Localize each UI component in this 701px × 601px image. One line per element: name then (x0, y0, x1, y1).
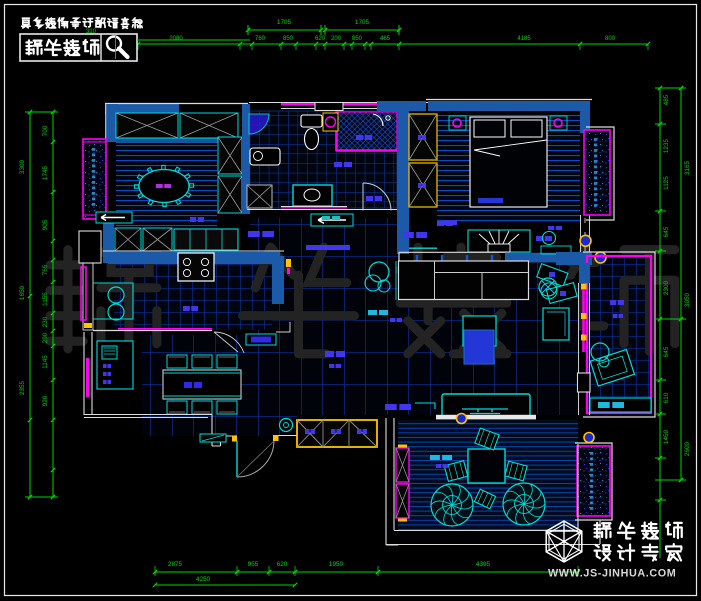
svg-text:2600: 2600 (684, 441, 691, 456)
svg-text:765: 765 (42, 264, 49, 275)
svg-text:2875: 2875 (168, 561, 183, 568)
svg-text:905: 905 (42, 219, 49, 230)
svg-text:760: 760 (255, 36, 266, 42)
svg-text:485: 485 (663, 94, 670, 105)
svg-text:465: 465 (380, 36, 391, 42)
svg-text:4250: 4250 (196, 576, 211, 583)
svg-text:2080: 2080 (169, 36, 183, 42)
svg-text:1705: 1705 (355, 19, 370, 26)
svg-text:920: 920 (42, 395, 49, 406)
svg-text:2355: 2355 (19, 380, 26, 395)
svg-text:1450: 1450 (663, 429, 670, 444)
svg-text:1155: 1155 (42, 292, 49, 306)
svg-text:1235: 1235 (663, 138, 670, 153)
svg-text:200: 200 (331, 36, 342, 42)
svg-text:4395: 4395 (476, 561, 491, 568)
svg-text:700: 700 (42, 125, 49, 136)
svg-text:610: 610 (663, 392, 670, 403)
svg-text:645: 645 (663, 226, 670, 237)
svg-text:645: 645 (663, 346, 670, 357)
svg-text:290: 290 (42, 332, 49, 343)
svg-text:230: 230 (42, 316, 49, 327)
svg-text:1125: 1125 (663, 176, 670, 190)
svg-text:3165: 3165 (684, 160, 691, 175)
svg-text:3050: 3050 (684, 292, 691, 307)
svg-text:WWW.JS-JINHUA.COM: WWW.JS-JINHUA.COM (548, 568, 676, 580)
svg-text:4185: 4185 (517, 36, 531, 42)
svg-text:1650: 1650 (19, 285, 26, 300)
svg-text:2300: 2300 (663, 280, 670, 295)
svg-text:620: 620 (315, 36, 326, 42)
svg-text:850: 850 (283, 36, 294, 42)
svg-text:3300: 3300 (19, 159, 26, 174)
svg-text:1745: 1745 (42, 165, 49, 180)
svg-text:620: 620 (277, 561, 288, 568)
svg-text:850: 850 (352, 36, 363, 42)
svg-text:800: 800 (605, 36, 616, 42)
svg-text:1145: 1145 (42, 355, 49, 369)
svg-text:955: 955 (248, 561, 259, 568)
svg-text:1950: 1950 (329, 561, 344, 568)
svg-text:1705: 1705 (277, 19, 292, 26)
